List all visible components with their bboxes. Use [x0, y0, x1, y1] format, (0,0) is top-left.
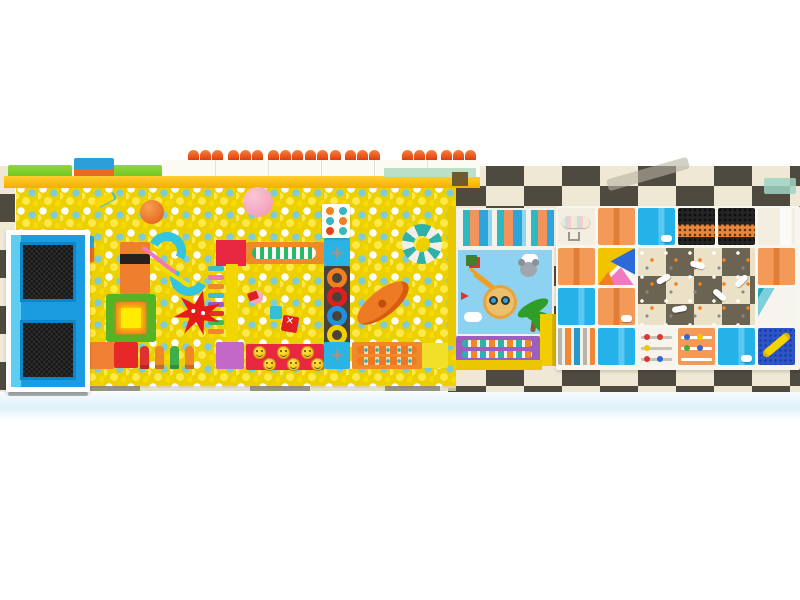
- orange-ball: [140, 200, 164, 224]
- slide-opening: [120, 254, 150, 264]
- dome-light: [228, 150, 239, 160]
- white-figure: [689, 260, 705, 270]
- playground-render: [0, 0, 800, 600]
- cell-roller: [558, 208, 595, 245]
- white-figure: [672, 305, 688, 314]
- bead: [684, 345, 690, 351]
- smiley-roller: [287, 358, 300, 371]
- cell-tangram: [598, 248, 635, 285]
- cell-stripes: [558, 328, 595, 365]
- dome-light: [200, 150, 211, 160]
- soft-pillar-row: [140, 346, 200, 370]
- ladder-rung: [208, 266, 224, 271]
- floor-shadow: [385, 386, 440, 391]
- cell-zigzag: [758, 288, 795, 325]
- cell-confetti: [638, 248, 755, 325]
- smiley-roller: [253, 346, 266, 359]
- dome-light: [369, 150, 380, 160]
- bead: [657, 334, 663, 340]
- smiley-roller: [311, 358, 324, 371]
- green-platform: [106, 294, 156, 342]
- dome-light: [465, 150, 476, 160]
- dome-light: [357, 150, 368, 160]
- purple-roller-platform: [456, 336, 540, 362]
- outer-floor-band: [0, 392, 800, 420]
- glass-pane: [764, 178, 796, 194]
- dome-light: [268, 150, 279, 160]
- glow-pad-frame: [116, 302, 146, 334]
- spinner-toy: [330, 348, 344, 362]
- dome-light: [317, 150, 328, 160]
- dome-light: [252, 150, 263, 160]
- red-soft-block: [114, 342, 138, 368]
- ladder-rung: [208, 293, 224, 298]
- red-dice-block: [281, 315, 300, 334]
- cell-blue: [598, 328, 635, 365]
- ball-pit-right-wall: [448, 206, 456, 346]
- bead: [644, 334, 650, 340]
- green-roller-track: [252, 247, 316, 259]
- glow-pad: [121, 308, 141, 328]
- mini-roller: [621, 315, 632, 322]
- mini-roller: [661, 235, 672, 242]
- swim-ring-float: [402, 224, 442, 264]
- hoop-ring-beam: [324, 266, 350, 346]
- yellow-soft-block: [422, 343, 448, 368]
- cell-mesh: [718, 208, 755, 245]
- bead: [644, 356, 650, 362]
- panel-dot: [326, 207, 334, 215]
- koala-ear: [532, 259, 539, 266]
- xylophone-ladder: [208, 266, 224, 342]
- panel-dot: [326, 227, 334, 235]
- mural-koala: [520, 262, 537, 277]
- cell-orange: [758, 248, 795, 285]
- dome-light: [240, 150, 251, 160]
- cell-orange: [558, 248, 595, 285]
- cell-orange: [598, 208, 635, 245]
- soft-pillar: [155, 346, 164, 369]
- dome-light: [305, 150, 316, 160]
- cyan-soft-block: [324, 342, 350, 369]
- soft-pillar: [140, 346, 149, 369]
- purple-soft-block: [216, 342, 244, 369]
- bead: [697, 345, 703, 351]
- dome-light: [426, 150, 437, 160]
- goggle: [489, 296, 498, 305]
- panel-dot: [326, 217, 334, 225]
- panel-dot: [339, 217, 347, 225]
- star-eye: [191, 309, 196, 314]
- cell-orange: [598, 288, 635, 325]
- hoop-ring: [327, 268, 347, 288]
- pink-ball: [243, 187, 273, 217]
- trampoline-mat: [20, 320, 76, 380]
- red-soft-block: [216, 240, 246, 266]
- cyan-mini-block: [270, 306, 282, 319]
- striped-roller: [462, 340, 532, 347]
- star-eye: [201, 311, 206, 316]
- yellow-foam-tube: [761, 331, 791, 358]
- white-figure: [734, 274, 749, 289]
- mini-roller: [741, 355, 752, 362]
- dome-light: [402, 150, 413, 160]
- orange-roller-platform: [352, 342, 422, 369]
- cell-cream: [758, 208, 795, 245]
- panel-dot: [339, 207, 347, 215]
- floor-shadow: [250, 386, 310, 391]
- mural-bucket: [466, 255, 477, 266]
- yellow-beam: [226, 264, 238, 344]
- striped-roller: [562, 216, 590, 228]
- cell-beads-orange: [678, 328, 715, 365]
- cell-blue: [718, 328, 755, 365]
- soft-play-grid: [556, 206, 800, 370]
- orange-soft-block: [88, 342, 114, 369]
- color-dot-panel: [322, 204, 350, 238]
- koala-ear: [518, 259, 525, 266]
- mount-bracket: [568, 232, 580, 241]
- ladder-rung: [208, 284, 224, 289]
- trampoline-unit: [6, 230, 90, 392]
- ladder-rung: [208, 275, 224, 280]
- cell-blue: [638, 208, 675, 245]
- smiley-roller-platform: [246, 344, 324, 370]
- dome-light: [330, 150, 341, 160]
- yellow-wall: [540, 314, 556, 366]
- dome-light: [188, 150, 199, 160]
- bead-rail: [681, 358, 712, 361]
- smiley-roller: [263, 358, 276, 371]
- cell-mesh: [678, 208, 715, 245]
- mural-flag: [461, 292, 469, 300]
- hoop-ring: [327, 287, 347, 307]
- dome-light: [453, 150, 464, 160]
- dome-light: [292, 150, 303, 160]
- soft-pillar: [170, 346, 179, 369]
- smiley-roller: [277, 346, 290, 359]
- soft-pillar: [185, 346, 194, 369]
- yellow-wall: [456, 360, 542, 370]
- dome-light: [345, 150, 356, 160]
- mural-lion-face: [486, 288, 514, 316]
- bead: [697, 334, 703, 340]
- dome-light: [441, 150, 452, 160]
- trampoline-shadow: [8, 392, 88, 396]
- wall-hatch: [452, 172, 468, 186]
- roller-track: [357, 357, 417, 365]
- yellow-ledge: [4, 176, 164, 188]
- bead: [644, 345, 650, 351]
- dome-light: [212, 150, 223, 160]
- cell-pegboard: [758, 328, 795, 365]
- trampoline-mat: [20, 242, 76, 302]
- cell-beads: [638, 328, 675, 365]
- ladder-rung: [208, 329, 224, 334]
- goggle: [501, 296, 510, 305]
- spinner-toy: [330, 246, 344, 260]
- panel-dot: [339, 227, 347, 235]
- dome-light: [280, 150, 291, 160]
- striped-padding-band: [456, 208, 556, 248]
- dome-light: [414, 150, 425, 160]
- white-figure: [712, 288, 727, 302]
- cyan-soft-block: [324, 238, 350, 268]
- striped-roller: [462, 351, 532, 358]
- hoop-ring: [327, 306, 347, 326]
- yellow-ledge: [160, 176, 384, 188]
- cell-blue: [558, 288, 595, 325]
- bead: [684, 334, 690, 340]
- white-figure: [656, 273, 672, 286]
- cloud: [464, 312, 482, 322]
- boat-seat: [377, 298, 388, 309]
- roller-track: [357, 346, 417, 354]
- bead: [657, 356, 663, 362]
- smiley-roller: [301, 346, 314, 359]
